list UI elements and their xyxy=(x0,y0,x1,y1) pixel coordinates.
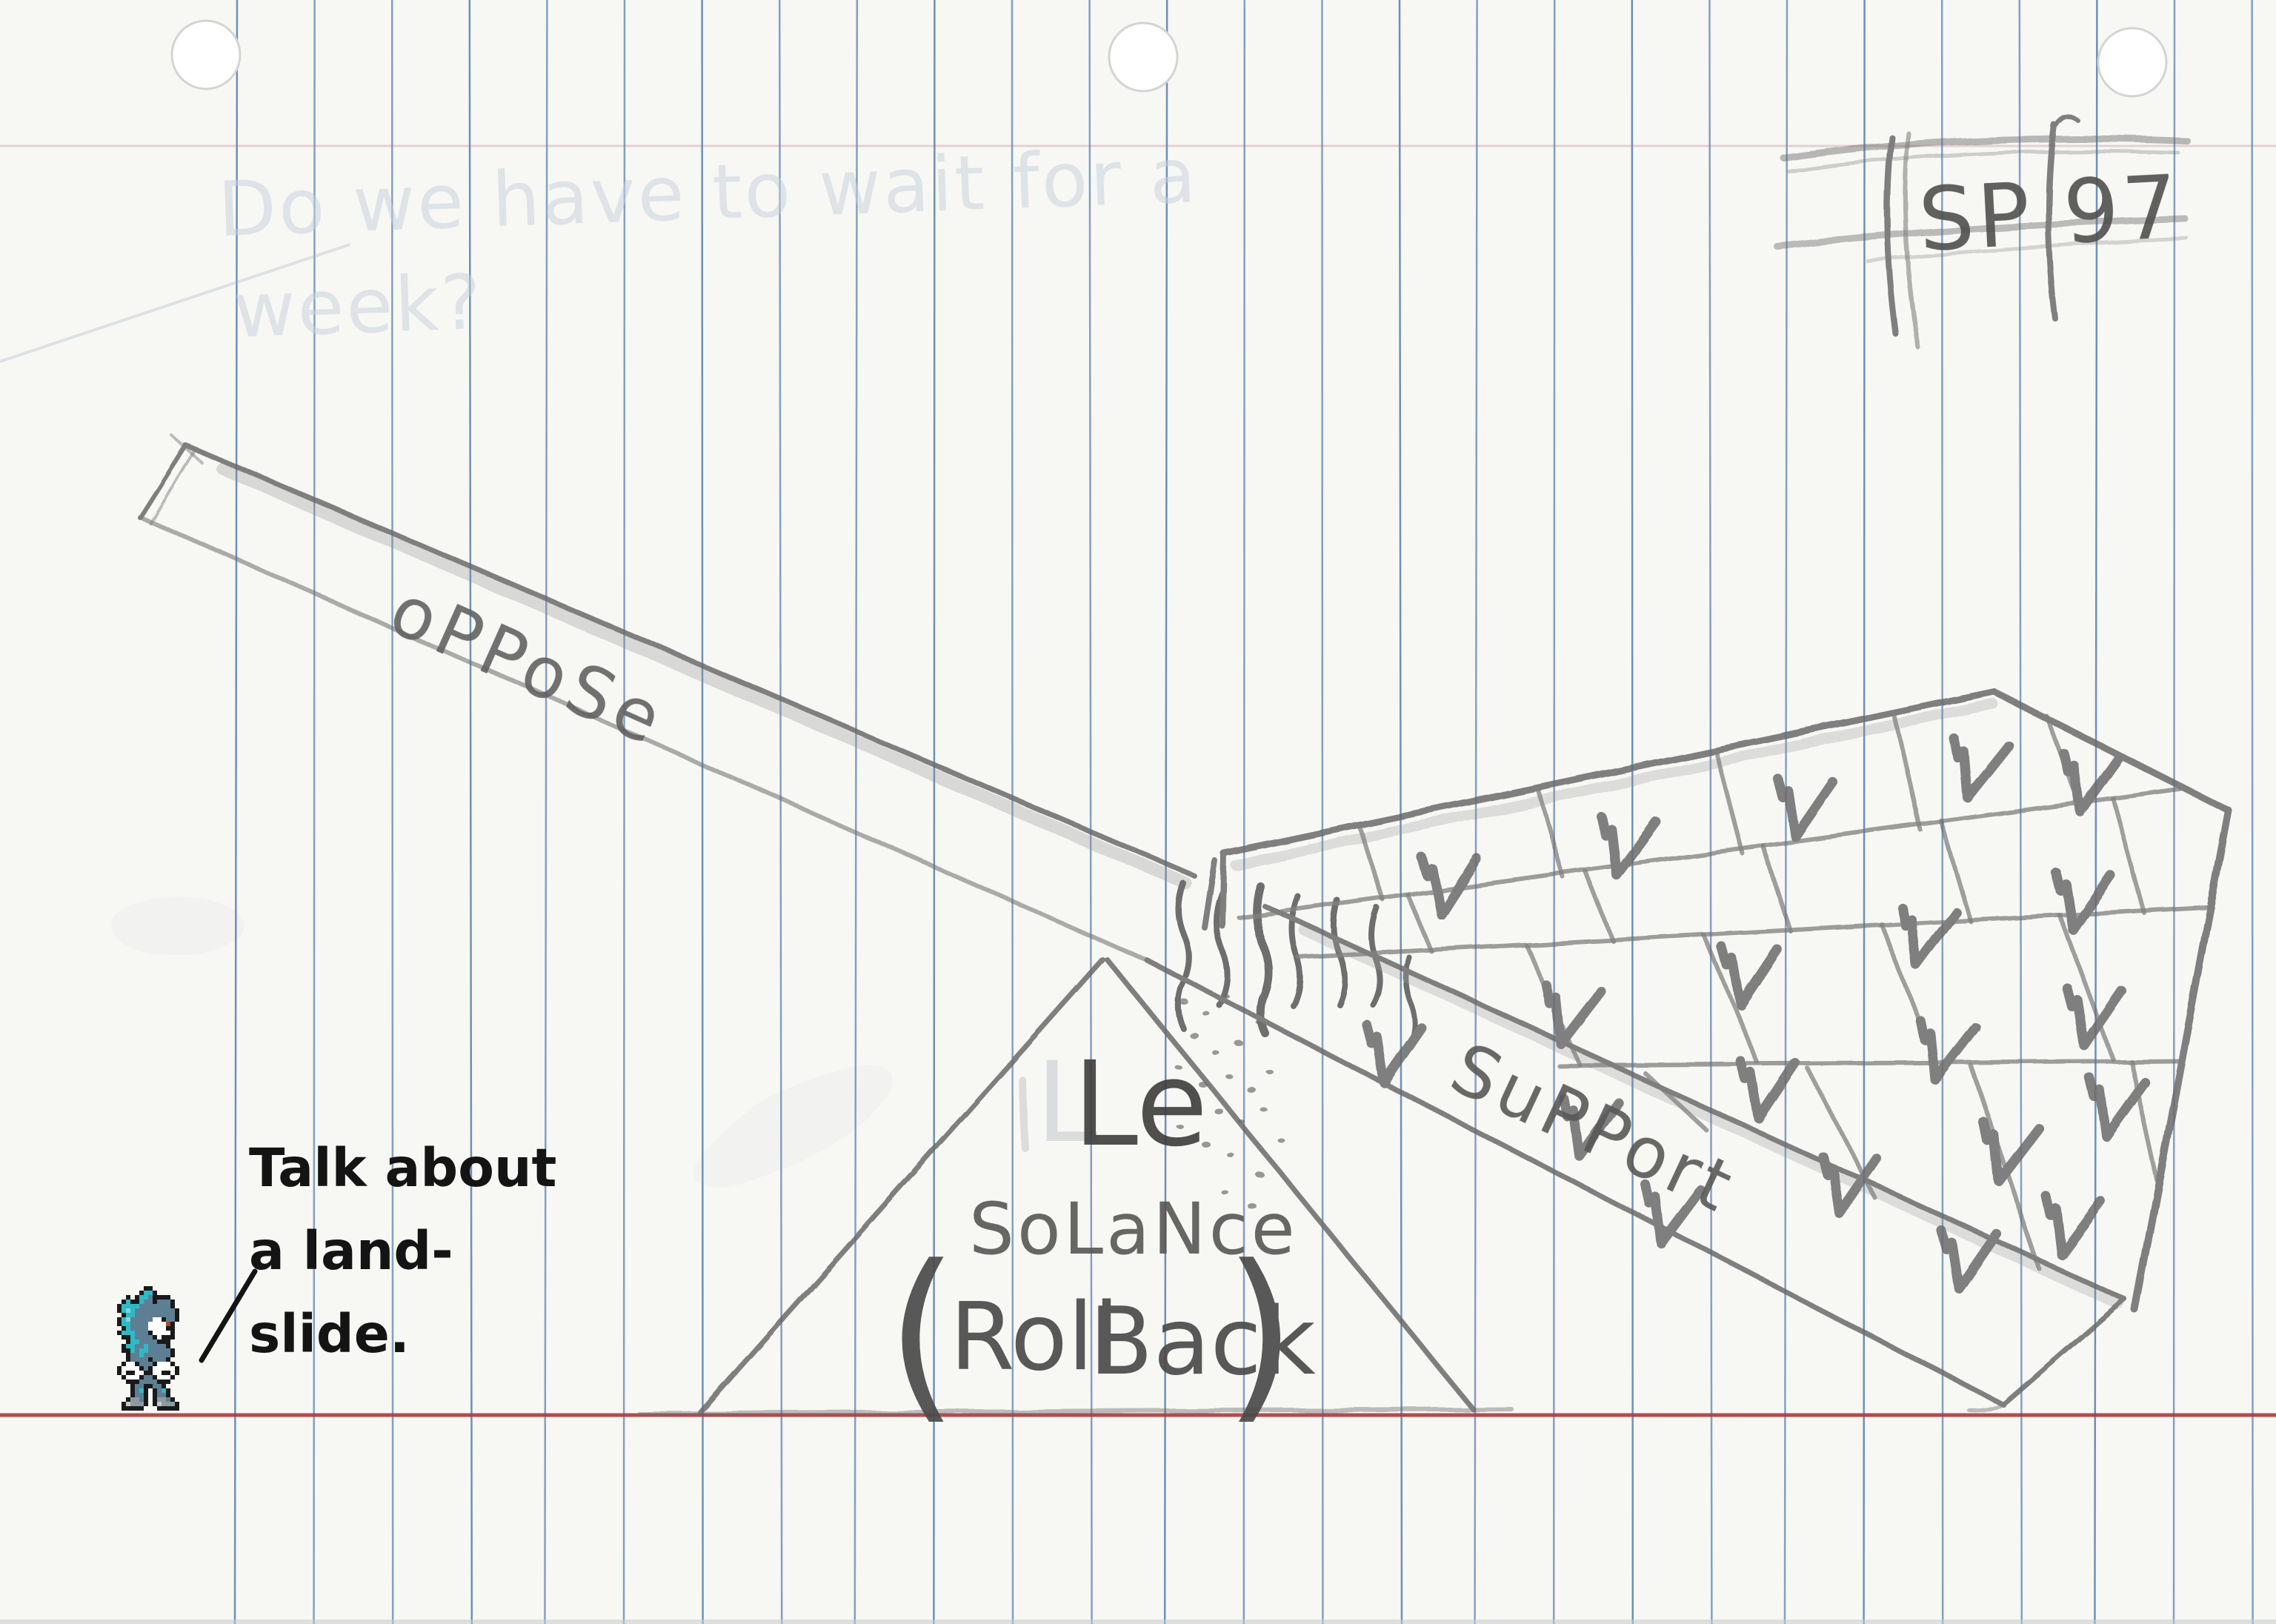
eraser-smudge xyxy=(111,896,244,956)
page-bottom-edge xyxy=(0,1620,2276,1624)
rollback-paren-close: ) xyxy=(1224,1225,1297,1441)
seesaw-cartoon-sketch: Do we have to wait for a week? xyxy=(0,0,2276,1624)
hole-punch xyxy=(172,21,240,89)
caption-line3: slide. xyxy=(249,1303,410,1365)
fulcrum-label-le: Le xyxy=(1073,1036,1208,1173)
caption-line2: a land- xyxy=(249,1220,453,1282)
sp97-mark: SP 97 xyxy=(1916,156,2183,271)
caption-line1: Talk about xyxy=(249,1137,556,1199)
hole-punch xyxy=(1109,23,1177,91)
hole-punch xyxy=(2098,28,2166,96)
rollback-paren-open: ( xyxy=(886,1225,959,1441)
notebook-scan: Do we have to wait for a week? xyxy=(0,0,2276,1624)
erased-note-line2: week? xyxy=(232,259,485,356)
